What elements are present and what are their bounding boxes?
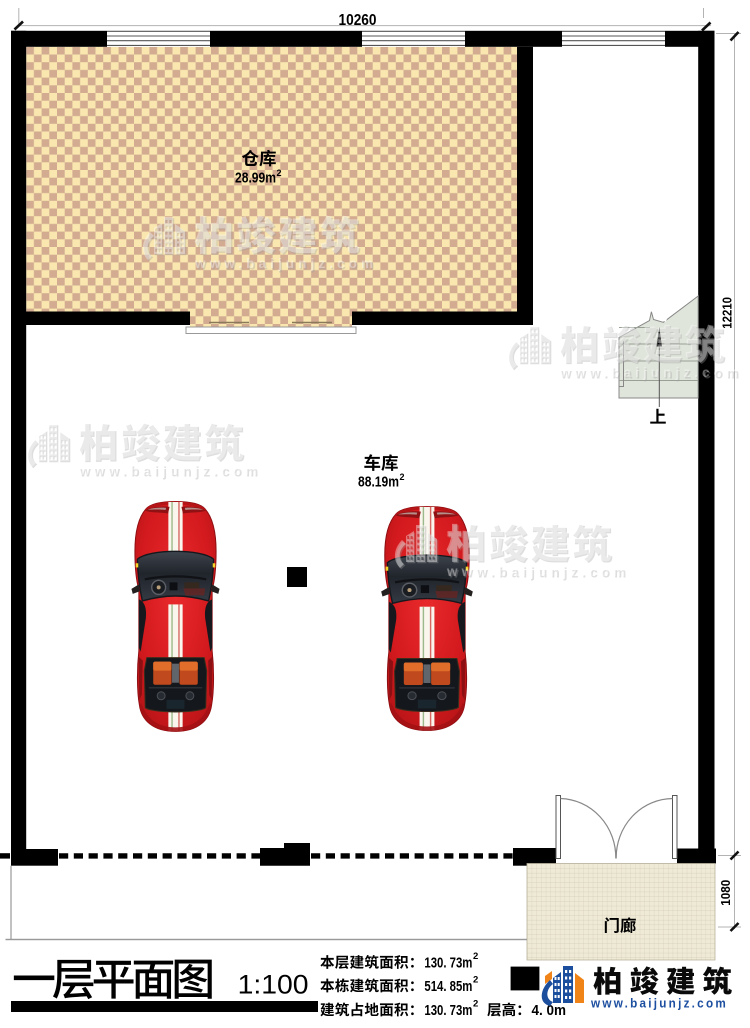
svg-text:130. 73m: 130. 73m — [424, 955, 472, 972]
svg-text:12210: 12210 — [720, 297, 735, 329]
svg-text:514. 85m: 514. 85m — [424, 978, 472, 995]
svg-text:www.baijunjz.com: www.baijunjz.com — [559, 365, 742, 380]
svg-text:www.baijunjz.com: www.baijunjz.com — [446, 564, 629, 579]
svg-text:www.baijunjz.com: www.baijunjz.com — [78, 463, 261, 478]
svg-text:28.99m: 28.99m — [235, 171, 276, 187]
svg-text:www.baijunjz.com: www.baijunjz.com — [590, 996, 728, 1011]
svg-text:88.19m: 88.19m — [358, 475, 399, 491]
svg-text:2: 2 — [473, 975, 478, 986]
svg-text:1080: 1080 — [718, 880, 733, 906]
svg-text:1:100: 1:100 — [238, 970, 309, 1000]
svg-text:2: 2 — [400, 472, 405, 482]
svg-text:2: 2 — [473, 999, 478, 1010]
svg-text:10260: 10260 — [339, 12, 377, 29]
svg-text:130. 73m: 130. 73m — [424, 1002, 472, 1019]
svg-text:2: 2 — [473, 951, 478, 962]
svg-text:2: 2 — [277, 168, 282, 178]
svg-text:www.baijunjz.com: www.baijunjz.com — [194, 256, 377, 271]
